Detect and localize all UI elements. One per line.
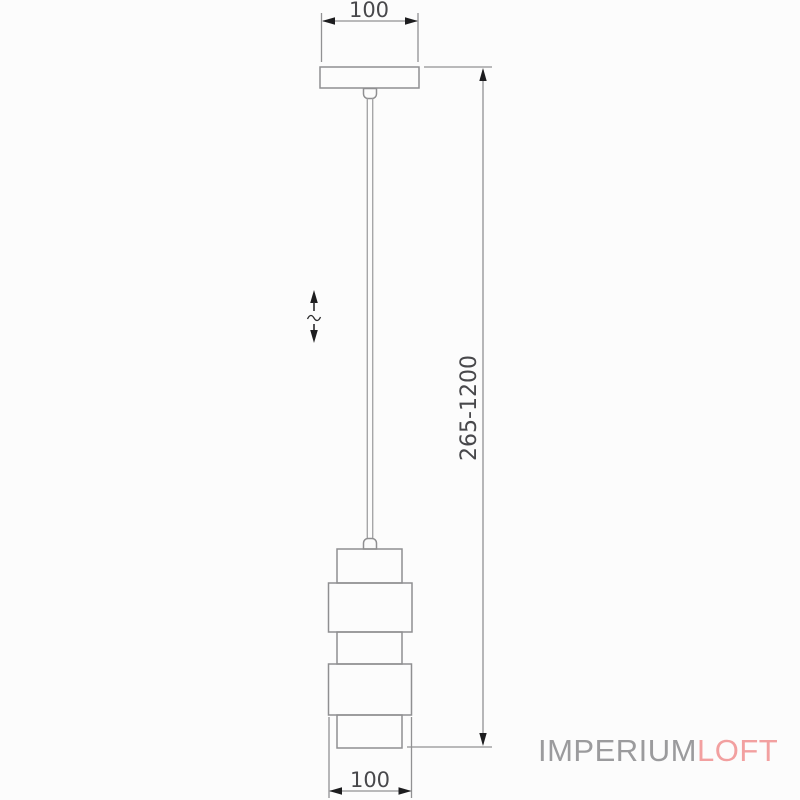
arrow-up-icon [310, 290, 318, 303]
shade-ring-3 [337, 632, 402, 664]
shade-ring-4 [329, 664, 412, 715]
cord-grip-bottom [364, 539, 377, 550]
arrow-down-icon [479, 733, 486, 746]
canopy-width-label: 100 [349, 0, 389, 22]
arrow-right-icon [399, 787, 412, 795]
shade-ring-1 [337, 549, 402, 583]
arrow-down-icon [310, 330, 318, 343]
arrow-left-icon [329, 787, 342, 795]
arrow-left-icon [322, 17, 335, 25]
pendant-lamp-technical-drawing: 100 265-1200 [0, 0, 800, 800]
ceiling-canopy [320, 67, 419, 88]
break-squiggle [308, 315, 321, 320]
watermark-logo: IMPERIUMLOFT [538, 733, 778, 769]
watermark-brand-primary: IMPERIUM [538, 733, 697, 768]
arrow-right-icon [405, 17, 418, 25]
shade-ring-5 [337, 715, 402, 748]
dimension-suspension-height: 265-1200 [407, 67, 492, 747]
arrow-up-icon [479, 68, 486, 81]
dimension-canopy-width: 100 [322, 0, 419, 62]
pendant-fixture [320, 67, 419, 748]
shade-ring-2 [329, 583, 413, 632]
cord-grip-top [364, 89, 377, 99]
dimension-shade-diameter: 100 [329, 717, 412, 798]
adjustable-height-icon [308, 290, 321, 343]
watermark-brand-accent: LOFT [697, 733, 778, 768]
suspension-height-label: 265-1200 [457, 355, 482, 461]
shade-diameter-label: 100 [350, 768, 390, 792]
